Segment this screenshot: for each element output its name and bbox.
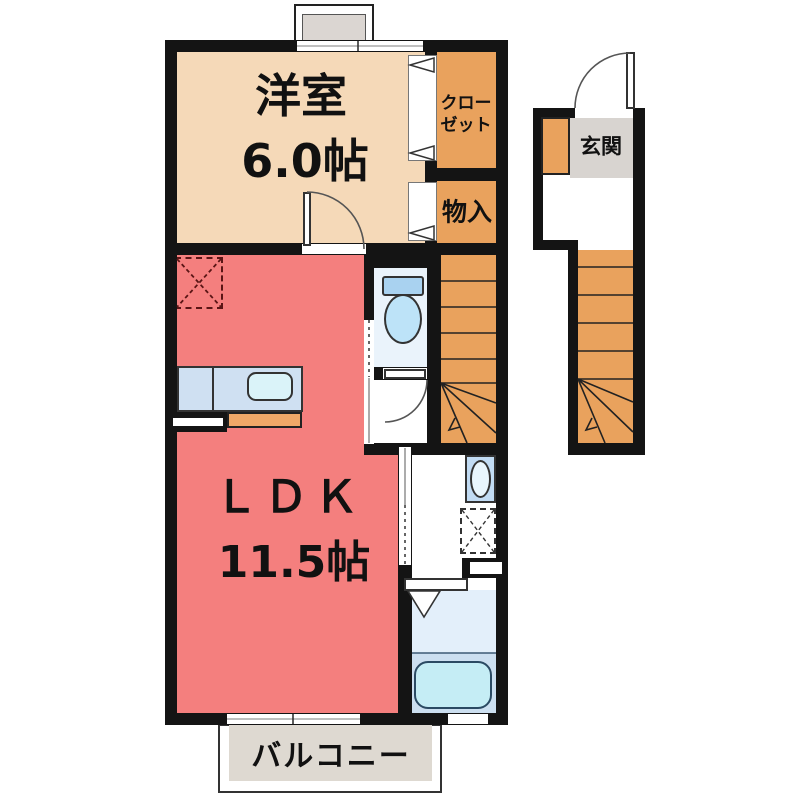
stairs-main <box>441 255 496 443</box>
entrance-wall-step <box>533 240 578 250</box>
label-storage: 物入 <box>442 200 492 225</box>
entrance-wall-right <box>633 108 645 455</box>
label-ldk-name: ＬＤＫ <box>214 476 364 520</box>
door-leaf-western <box>303 192 311 246</box>
closet-door-panel <box>408 55 437 161</box>
entrance-stair-wall-left <box>568 250 578 455</box>
folding-door-bath <box>404 578 468 591</box>
kitchen-sink-icon <box>247 372 293 401</box>
storage-door-panel <box>408 182 437 241</box>
toilet-icon-bowl <box>384 294 422 344</box>
toilet-icon-tank <box>382 276 424 296</box>
washing-machine-space-icon <box>460 508 496 554</box>
refrigerator-space-icon <box>175 257 223 309</box>
window-bath-opening <box>448 714 488 724</box>
door-leaf-entrance <box>626 52 635 109</box>
outer-wall-left <box>165 40 177 725</box>
sliding-door-ldk-hall <box>364 377 374 444</box>
sliding-door-pocket-ldk-hall <box>364 320 374 377</box>
bathtub-icon <box>414 661 492 709</box>
wall-washroom-top <box>364 443 508 455</box>
kitchen-counter-divider <box>212 367 214 411</box>
window-top-opening <box>297 41 423 51</box>
kitchen-stub-slot <box>173 418 223 426</box>
room-hall <box>374 380 427 443</box>
label-balcony: バルコニー <box>251 742 410 772</box>
entrance-wall-bottom <box>568 443 645 455</box>
label-western-size: 6.0帖 <box>241 138 369 184</box>
sliding-door-pocket-ldk-washroom <box>399 505 411 565</box>
door-swing-icon-entrance <box>575 53 630 108</box>
door-gap-western-ldk <box>302 244 366 254</box>
outer-wall-right <box>496 40 508 725</box>
window-box-inner <box>302 14 366 41</box>
wall-ldk-bath <box>398 590 412 713</box>
stairs-outside <box>578 250 633 443</box>
label-entrance: 玄関 <box>580 137 622 158</box>
washbasin-icon-oval <box>470 460 491 498</box>
label-ldk-size: 11.5帖 <box>218 541 371 585</box>
door-leaf-toilet <box>384 369 426 379</box>
window-bottom-opening <box>227 714 360 724</box>
room-bath-upper <box>412 590 496 653</box>
room-entrance-hall <box>543 178 633 240</box>
label-western-room: 洋室 <box>255 73 347 119</box>
wall-toilet-stairs <box>427 255 441 443</box>
wall-toilet-top <box>374 255 427 268</box>
label-closet-line2: ゼット <box>441 118 492 135</box>
door-gap-entrance <box>575 108 633 118</box>
floor-plan: 洋室 6.0帖 クロー ゼット 物入 玄関 ＬＤＫ 11.5帖 バルコニー <box>0 0 800 800</box>
shoe-cabinet-icon <box>541 117 570 175</box>
kitchen-cabinet <box>227 412 302 428</box>
sliding-door-ldk-washroom <box>399 447 411 505</box>
stub-notch <box>470 562 502 574</box>
wall-closet-storage <box>437 168 496 181</box>
label-closet-line1: クロー <box>441 96 492 113</box>
